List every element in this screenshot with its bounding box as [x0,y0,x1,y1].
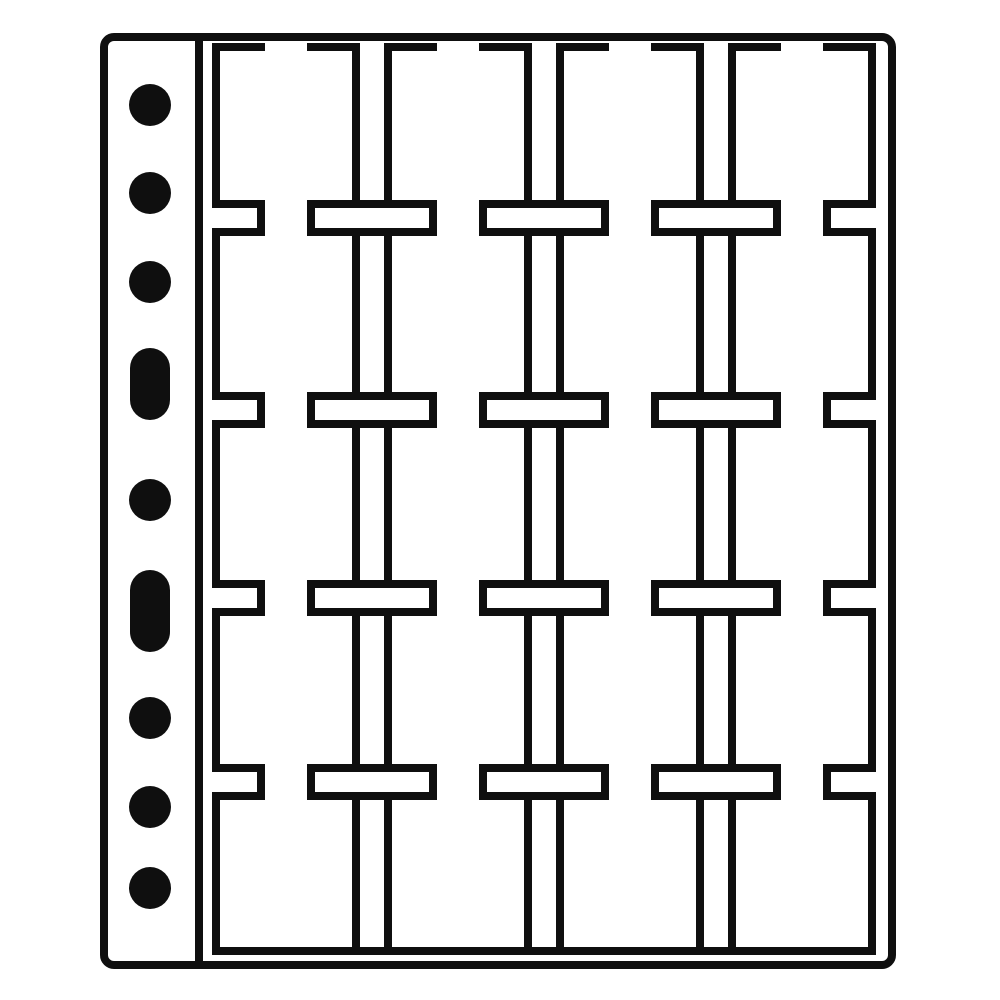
slit-top-line [479,580,609,588]
slit-end-vertical [773,764,781,800]
bottom-seam [212,947,876,955]
pocket-wall [212,608,220,772]
slit-bottom-line [651,228,781,236]
slit-bottom-line [479,228,609,236]
slit-end-vertical [601,580,609,616]
slit-top-line [651,392,781,400]
binder-hole-round [129,261,171,303]
slit-bottom-line [651,608,781,616]
slit-end-vertical [479,200,487,236]
slit-end-vertical [257,200,265,236]
pocket-wall [212,43,220,208]
slit-end-vertical [479,392,487,428]
pocket-wall [868,228,876,400]
slit-bottom-line [479,792,609,800]
slit-end-vertical [257,580,265,616]
pocket-wall [524,420,532,588]
slit-end-vertical [479,580,487,616]
slit-end-vertical [429,764,437,800]
binder-hole-round [129,479,171,521]
slit-bottom-line [307,420,437,428]
pocket-wall [352,608,360,772]
pocket-wall [384,792,392,955]
pocket-wall [696,228,704,400]
slit-end-vertical [651,764,659,800]
pocket-wall [384,420,392,588]
slit-end-vertical [601,392,609,428]
pocket-wall [728,43,736,208]
slit-bottom-line [307,228,437,236]
slit-end-vertical [823,580,831,616]
coin-album-sheet-drawing [0,0,1000,1000]
binder-hole-round [129,172,171,214]
pocket-wall [868,420,876,588]
slit-end-vertical [651,580,659,616]
slit-end-vertical [601,764,609,800]
slit-top-line [307,580,437,588]
pocket-wall [868,792,876,955]
pocket-wall [352,420,360,588]
slit-end-vertical [257,392,265,428]
pocket-wall [524,228,532,400]
binder-hole-oblong [130,348,170,420]
binder-margin-divider [195,37,203,965]
pocket-wall [524,792,532,955]
slit-end-vertical [651,200,659,236]
pocket-wall [728,228,736,400]
slit-bottom-line [479,608,609,616]
slit-end-vertical [823,392,831,428]
slit-top-line [651,764,781,772]
slit-end-vertical [429,580,437,616]
slit-bottom-line [651,420,781,428]
pocket-wall [556,420,564,588]
slit-end-vertical [601,200,609,236]
pocket-wall [352,792,360,955]
slit-top-line [307,392,437,400]
binder-hole-round [129,697,171,739]
pocket-wall [728,792,736,955]
pocket-wall [212,228,220,400]
slit-end-vertical [429,200,437,236]
slit-bottom-line [479,420,609,428]
pocket-wall [384,608,392,772]
pocket-wall [696,608,704,772]
slit-bottom-line [307,608,437,616]
slit-top-line [651,580,781,588]
slit-bottom-line [307,792,437,800]
binder-hole-oblong [130,570,170,652]
binder-hole-round [129,867,171,909]
pocket-wall [524,608,532,772]
pocket-wall [556,43,564,208]
slit-end-vertical [307,580,315,616]
pocket-wall [212,420,220,588]
pocket-wall [352,43,360,208]
slit-end-vertical [307,392,315,428]
slit-end-vertical [429,392,437,428]
slit-end-vertical [479,764,487,800]
pocket-wall [868,608,876,772]
slit-end-vertical [773,200,781,236]
pocket-wall [696,420,704,588]
slit-end-vertical [651,392,659,428]
pocket-wall [696,792,704,955]
pocket-wall [384,43,392,208]
pocket-wall [384,228,392,400]
slit-end-vertical [773,392,781,428]
binder-hole-round [129,84,171,126]
coin-album-sheet-illustration [0,0,1000,1000]
slit-top-line [651,200,781,208]
slit-end-vertical [307,200,315,236]
pocket-wall [868,43,876,208]
slit-top-line [479,764,609,772]
slit-end-vertical [257,764,265,800]
slit-bottom-line [651,792,781,800]
pocket-wall [352,228,360,400]
pocket-wall [212,792,220,955]
slit-end-vertical [307,764,315,800]
pocket-wall [524,43,532,208]
slit-end-vertical [773,580,781,616]
pocket-wall [556,228,564,400]
pocket-wall [728,608,736,772]
slit-end-vertical [823,764,831,800]
slit-top-line [307,764,437,772]
pocket-wall [556,608,564,772]
pocket-wall [728,420,736,588]
slit-top-line [307,200,437,208]
slit-end-vertical [823,200,831,236]
pocket-wall [556,792,564,955]
binder-hole-round [129,786,171,828]
slit-top-line [479,200,609,208]
pocket-wall [696,43,704,208]
slit-top-line [479,392,609,400]
